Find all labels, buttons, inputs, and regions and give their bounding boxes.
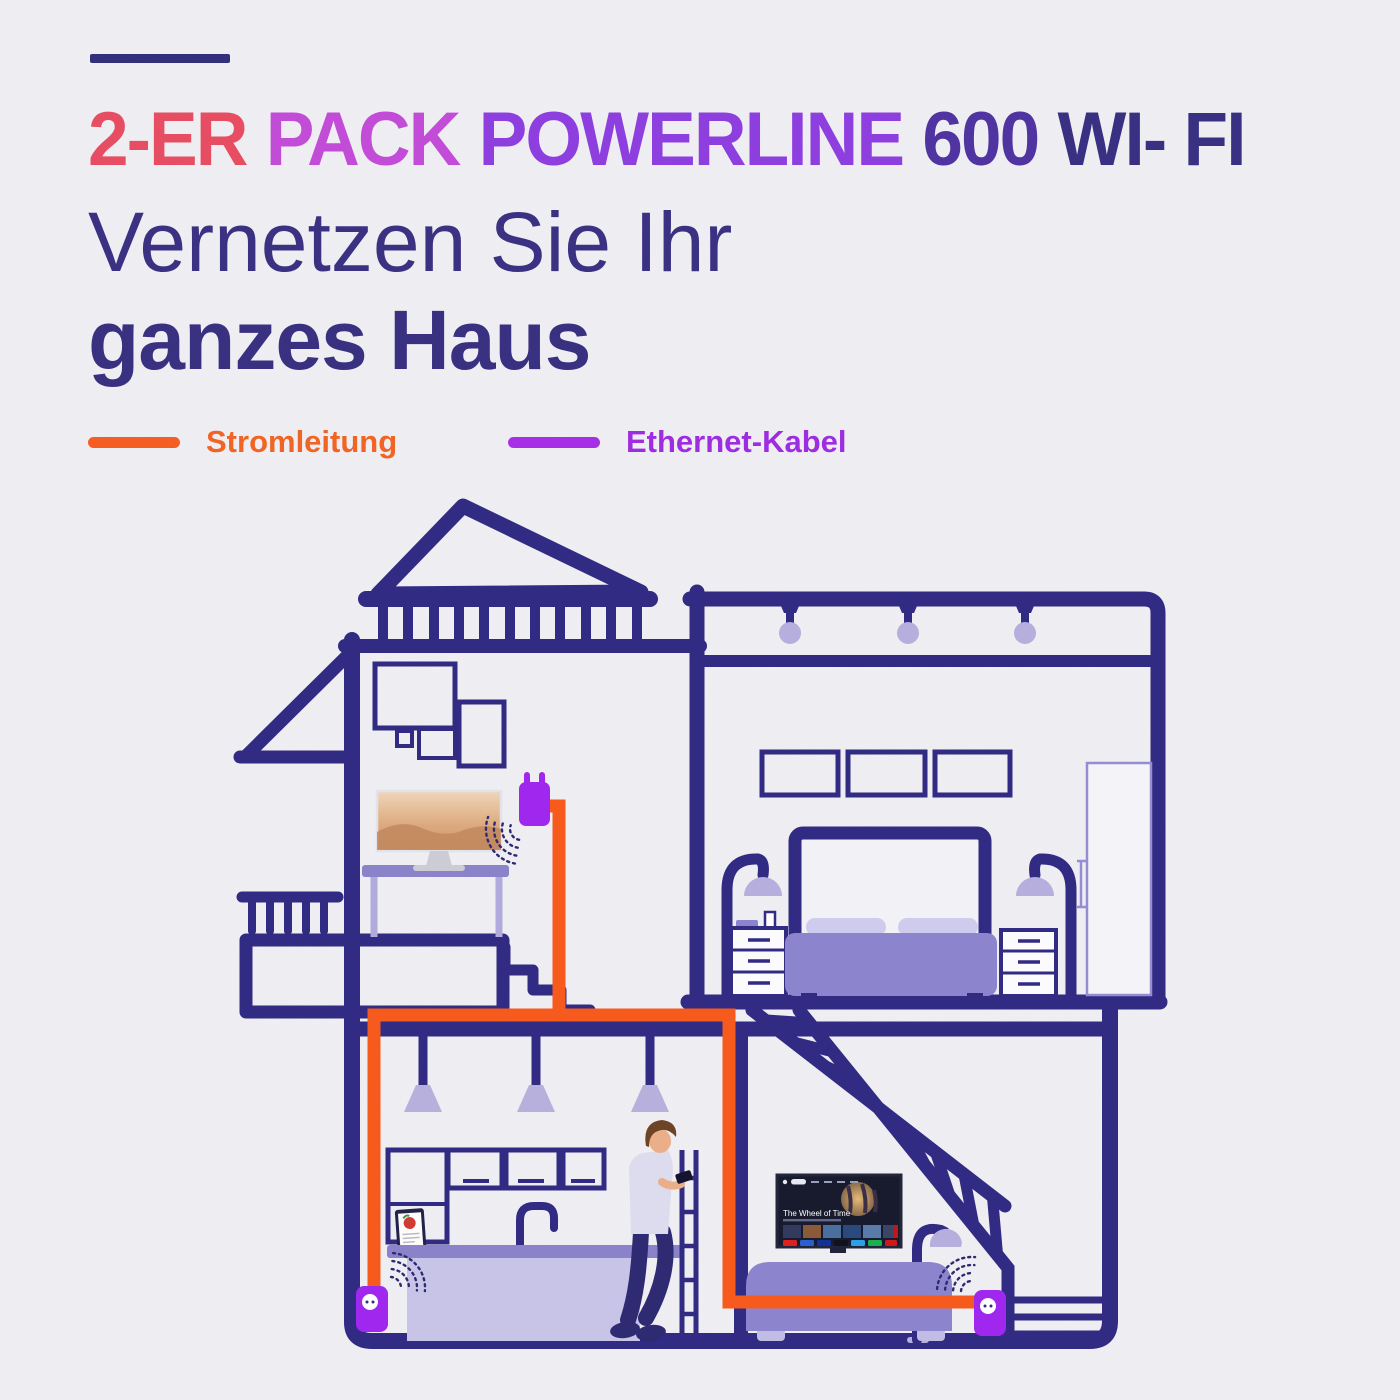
bed-foot	[967, 993, 983, 1003]
tv-thumbnail-row	[783, 1225, 897, 1238]
poster: 2-ER PACK POWERLINE 600 WI- FI Vernetzen…	[0, 0, 1400, 1400]
door-panel	[1087, 763, 1151, 995]
socket-pin	[990, 1305, 993, 1308]
person-shirt	[629, 1150, 673, 1234]
monitor-stand	[426, 851, 452, 866]
tv-title: The Wheel of Time	[783, 1209, 851, 1218]
light-bulb	[1014, 622, 1036, 644]
adapter-socket	[362, 1294, 378, 1310]
light-bulb	[897, 622, 919, 644]
tv-stand	[830, 1247, 846, 1253]
light-bulb	[779, 622, 801, 644]
bottle	[765, 912, 775, 928]
tv-subtitle-bar	[783, 1219, 841, 1221]
tablet	[395, 1208, 427, 1251]
mattress	[785, 933, 997, 996]
bedroom-door	[1077, 763, 1151, 995]
light-mount	[899, 606, 917, 613]
socket-pin	[366, 1301, 369, 1304]
adapter-socket	[980, 1298, 996, 1314]
socket-pin	[984, 1305, 987, 1308]
kitchen-island-body	[407, 1258, 640, 1341]
tv-nav-pill	[791, 1179, 806, 1185]
light-mount	[781, 606, 799, 613]
monitor-base	[413, 865, 465, 871]
bed-foot	[801, 993, 817, 1003]
house-illustration: The Wheel of Time	[0, 0, 1400, 1400]
nightstand-right	[1001, 930, 1056, 996]
tv-logo	[783, 1180, 787, 1184]
socket-pin	[372, 1301, 375, 1304]
bed	[785, 833, 997, 1003]
tv-accent	[893, 1225, 898, 1238]
light-mount	[1016, 606, 1034, 613]
tv: The Wheel of Time	[777, 1175, 901, 1253]
adapter-body	[519, 782, 550, 826]
